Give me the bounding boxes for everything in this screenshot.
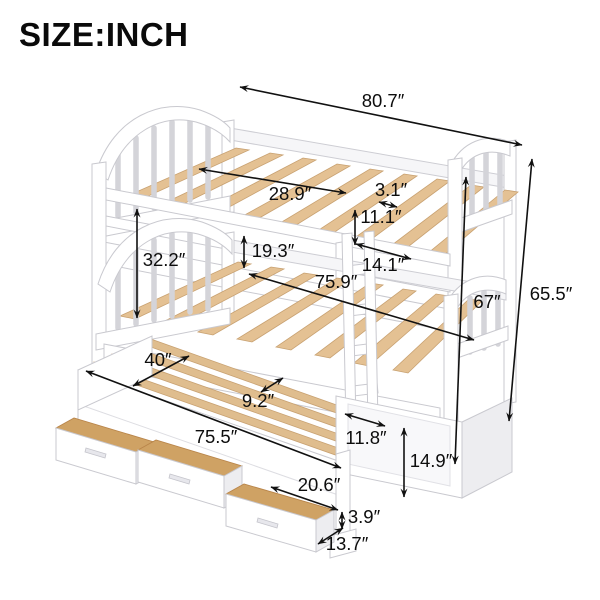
dim-total-length: 80.7″: [240, 87, 522, 145]
size-diagram: 80.7″ 28.9″ 3.1″ 11.1″ 19.3″ 32.2″ 14.1″: [0, 0, 600, 600]
dim-label-foot-section-width: 14.1″: [362, 254, 405, 275]
dim-label-front-height: 67″: [473, 291, 501, 312]
dim-label-trundle-height: 14.9″: [410, 450, 453, 471]
dim-label-trundle-width: 40″: [144, 349, 172, 370]
dim-label-total-height: 65.5″: [530, 283, 573, 304]
page-title: SIZE:INCH: [19, 16, 189, 53]
dim-rail-gap: 3.1″: [375, 179, 408, 207]
dim-label-total-length: 80.7″: [362, 90, 405, 111]
dim-label-bunk-clearance: 19.3″: [252, 240, 295, 261]
lower-front-right-post: [444, 294, 458, 436]
dim-label-guardrail-height: 11.1″: [360, 206, 402, 227]
dim-label-drawer-depth: 13.7″: [326, 533, 369, 554]
dim-total-height: 65.5″: [509, 159, 573, 421]
dim-label-lower-bed-length: 75.9″: [315, 271, 358, 292]
dim-label-ladder-width: 11.8″: [345, 427, 387, 448]
dim-drawer-height: 3.9″: [342, 506, 381, 529]
dim-label-slat-spacing: 9.2″: [242, 390, 275, 411]
dim-label-drawer-width: 20.6″: [298, 474, 341, 495]
dim-label-trundle-length: 75.5″: [195, 426, 238, 447]
base-side-panel: [462, 398, 512, 498]
dim-label-guardrail-opening: 28.9″: [269, 183, 312, 204]
dim-label-drawer-height: 3.9″: [348, 506, 381, 527]
dim-bunk-clearance: 19.3″: [244, 236, 295, 268]
dim-label-upper-section-height: 32.2″: [143, 249, 186, 270]
dim-label-rail-gap: 3.1″: [375, 179, 408, 200]
